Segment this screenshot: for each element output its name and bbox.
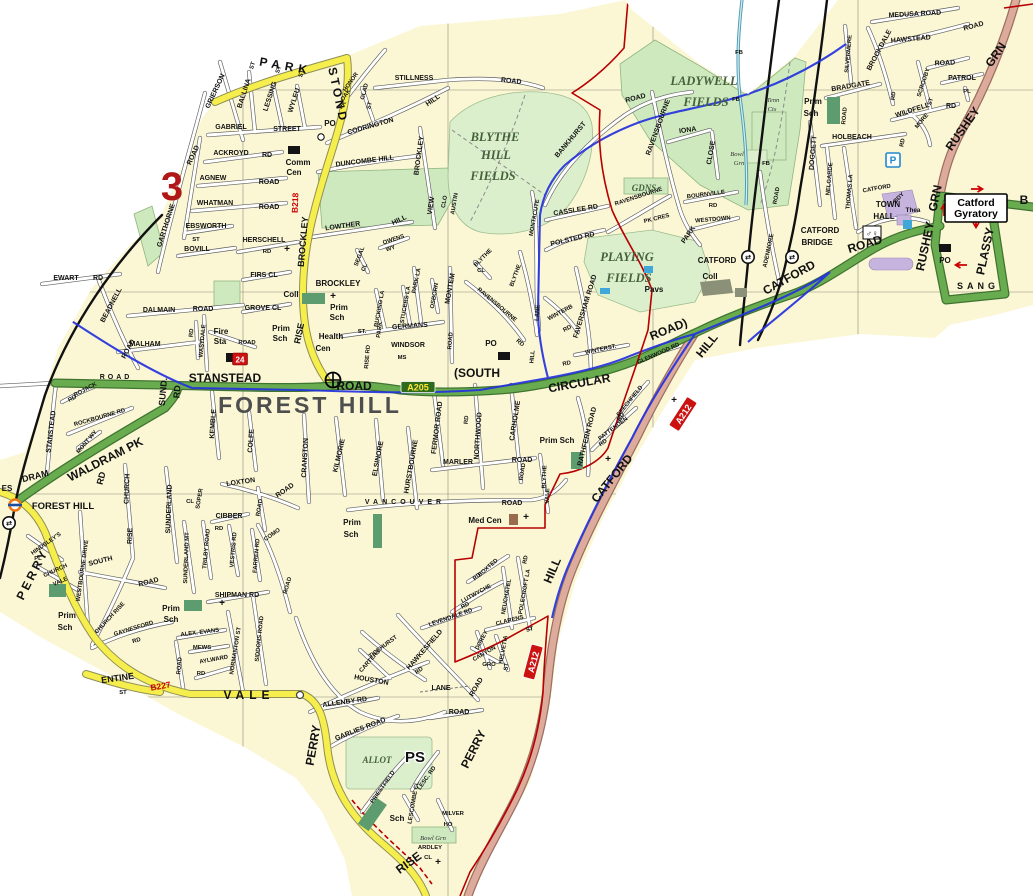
svg-text:Gyratory: Gyratory	[954, 208, 998, 220]
map-label: SHIPMAN RD	[215, 592, 259, 599]
map-label: MALHAM	[129, 341, 160, 348]
map-label: Health	[319, 332, 344, 341]
map-label: Comm	[286, 158, 311, 167]
map-label: RD	[171, 384, 182, 398]
map-label: Tenn	[767, 97, 780, 104]
map-label: BLYTHE	[470, 130, 520, 144]
map-label: ROAD	[512, 457, 533, 464]
medical-centre-building	[509, 514, 518, 525]
college-building	[700, 279, 733, 296]
road-badge-a205: A205	[401, 382, 435, 393]
svg-text:A205: A205	[407, 383, 429, 393]
map-label: Sch	[804, 109, 819, 118]
svg-text:⇄: ⇄	[789, 254, 795, 262]
map-label: ARDLEY	[418, 845, 442, 851]
map-label: ROAD	[238, 340, 255, 346]
svg-text:+: +	[330, 291, 336, 302]
fire-station-building	[226, 353, 233, 362]
svg-text:+: +	[605, 454, 611, 465]
map-label: Sch	[58, 623, 73, 632]
map-label: ST	[249, 61, 257, 70]
map-label: Sch	[164, 615, 179, 624]
map-label: LANE	[431, 685, 450, 692]
church-cross-icon: +	[284, 244, 290, 255]
map-label: ST	[119, 690, 127, 696]
college-building	[735, 288, 747, 297]
grove-close-green	[214, 281, 240, 306]
svg-text:A212: A212	[673, 403, 693, 426]
svg-text:+: +	[284, 244, 290, 255]
church-cross-icon: +	[671, 395, 677, 406]
church-cross-icon: +	[523, 512, 529, 523]
svg-text:+: +	[671, 395, 677, 406]
map-label: Sch	[344, 530, 359, 539]
map-label: SANG	[957, 281, 999, 291]
national-rail-icon: ⇄	[3, 517, 15, 529]
map-label: PO	[485, 339, 497, 348]
map-label: HILL	[529, 350, 536, 364]
svg-text:+: +	[219, 598, 225, 609]
svg-text:⇄: ⇄	[745, 254, 751, 262]
post-office-building	[498, 352, 510, 360]
map-label: PO	[324, 119, 336, 128]
svg-text:P: P	[890, 156, 897, 167]
svg-text:PS: PS	[405, 749, 425, 766]
map-label: MS	[398, 355, 407, 361]
road-badge-24: 24	[233, 353, 248, 365]
map-label: ST.	[358, 329, 367, 335]
map-label: BLYTHE	[542, 465, 549, 488]
map-label: Prim	[58, 611, 76, 620]
road-badge-catford-gyratory: CatfordGyratory	[945, 194, 1007, 222]
pond	[600, 288, 610, 294]
map-label: CL	[477, 268, 485, 274]
map-label: PO	[939, 256, 951, 265]
post-office-building	[939, 244, 951, 252]
school-building	[184, 600, 202, 611]
map-label: Prim	[162, 604, 180, 613]
street-map: +++++++♂♀PS PARKSTONDGRIERSONROADGABRIEL…	[0, 0, 1033, 896]
theatre-building	[903, 220, 912, 229]
school-building	[827, 97, 840, 124]
svg-text:+: +	[523, 512, 529, 523]
map-label: Prim	[272, 324, 290, 333]
map-label: ROAD	[502, 500, 523, 507]
map-label: RD	[946, 103, 956, 110]
map-label: Prim Sch	[540, 436, 575, 445]
map-label: Coll	[702, 272, 717, 281]
map-label: PLAYING	[600, 250, 653, 264]
national-rail-icon: ⇄	[786, 251, 798, 263]
map-label: RD	[891, 91, 898, 100]
map-label: GABRIEL	[215, 124, 247, 131]
map-label: Sch	[390, 814, 405, 823]
map-label: ACKROYD	[213, 150, 248, 157]
map-label: B218	[290, 192, 301, 213]
police-station-icon: PS	[405, 749, 425, 766]
map-label: RD	[215, 526, 224, 532]
school-building	[373, 514, 382, 548]
map-label: PL	[963, 89, 971, 95]
map-label: Bowl	[730, 151, 744, 158]
map-label: ES	[2, 484, 13, 493]
map-label: Coll	[283, 290, 298, 299]
map-label: GRO	[482, 662, 496, 668]
map-label: FB	[735, 50, 743, 56]
map-label: FB	[732, 97, 740, 103]
map-label: HILL	[480, 148, 511, 162]
map-label: PATROL	[948, 75, 976, 82]
map-label: CATFORD	[698, 256, 737, 265]
civic-building	[869, 258, 913, 270]
map-label: ROAD	[100, 374, 133, 381]
map-label: EWART	[53, 275, 79, 282]
map-label: RISE	[127, 527, 135, 544]
map-label: MARLER	[443, 459, 473, 466]
map-label: ROAD	[449, 709, 470, 716]
map-label: WINDSOR	[391, 342, 425, 349]
map-label: ROAD	[259, 204, 280, 211]
map-label: (SOUTH	[454, 366, 500, 380]
map-label: RD	[262, 152, 272, 159]
map-label: 3	[161, 165, 183, 209]
map-label: STILLNESS	[395, 75, 434, 82]
map-label: Cen	[315, 344, 330, 353]
school-building	[302, 293, 325, 304]
map-label: CATFORD	[801, 226, 840, 235]
parking-icon: P	[886, 153, 900, 167]
map-label: MILVER	[442, 811, 465, 817]
church-cross-icon: +	[435, 857, 441, 868]
map-label: ROAD	[259, 179, 280, 186]
map-label: RD	[709, 203, 718, 209]
map-label: FIELDS	[682, 95, 728, 109]
map-label: TOWN	[876, 200, 901, 209]
map-label: VALE	[545, 488, 552, 504]
map-label: RD	[93, 275, 103, 282]
map-label: MEWS	[193, 645, 211, 651]
map-label: Prim	[804, 97, 822, 106]
map-label: FIELDS	[469, 169, 515, 183]
map-label: Cen	[286, 168, 301, 177]
map-label: CHURCH	[123, 474, 131, 505]
map-label: ROAD	[934, 59, 955, 67]
map-label: ALLOT	[362, 755, 392, 765]
map-label: Cts	[768, 106, 777, 113]
map-label: ST	[192, 237, 200, 243]
map-label: FOREST HILL	[32, 501, 94, 512]
map-label: GROVE CL	[245, 305, 282, 312]
map-label: FIRS CL	[250, 272, 278, 279]
svg-text:+: +	[435, 857, 441, 868]
map-label: B	[1020, 193, 1029, 207]
map-label: EBSWORTH	[186, 223, 227, 230]
svg-text:24: 24	[236, 356, 245, 365]
map-label: FB	[762, 161, 770, 167]
map-root[interactable]: +++++++♂♀PS PARKSTONDGRIERSONROADGABRIEL…	[0, 0, 1033, 896]
map-label: FOREST HILL	[218, 392, 402, 418]
map-label: Thea	[906, 207, 921, 214]
map-label: WHATMAN	[197, 200, 233, 207]
map-label: PL	[34, 556, 42, 562]
map-label: Sta	[214, 337, 227, 346]
national-rail-icon: ⇄	[742, 251, 754, 263]
church-cross-icon: +	[219, 598, 225, 609]
map-label: HERSCHELL	[243, 237, 287, 244]
map-label: HOLBEACH	[832, 134, 872, 141]
map-label: RD	[189, 328, 196, 337]
community-centre-building	[288, 146, 300, 154]
map-label: DALMAIN	[143, 307, 175, 314]
map-label: RD	[197, 671, 206, 677]
map-label: Bowl Grn	[420, 835, 447, 842]
map-label: HO	[444, 822, 453, 828]
map-label: BRIDGE	[801, 238, 833, 247]
map-label: Sch	[330, 313, 345, 322]
map-label: VANCOUVER	[365, 499, 445, 506]
svg-text:⇄: ⇄	[6, 520, 12, 528]
map-label: AGNEW	[200, 175, 227, 182]
church-cross-icon: +	[330, 291, 336, 302]
map-label: BROCKLEY	[316, 279, 362, 288]
map-label: Prim	[330, 303, 348, 312]
map-label: VALE	[223, 688, 274, 702]
map-label: CIBBER	[216, 513, 243, 520]
map-label: Pavs	[645, 285, 664, 294]
map-label: LADYWELL	[669, 74, 738, 88]
map-label: Sch	[273, 334, 288, 343]
map-label: CL	[186, 499, 194, 505]
map-label: CL	[424, 855, 432, 861]
map-label: ROAD	[336, 379, 372, 393]
map-label: Grn	[734, 160, 745, 167]
map-label: BOVILL	[184, 246, 210, 253]
map-label: GDNS	[632, 183, 657, 193]
church-cross-icon: +	[605, 454, 611, 465]
map-label: RD	[263, 249, 272, 255]
map-label: Med Cen	[468, 516, 501, 525]
map-label: FIELDS	[605, 271, 651, 285]
map-label: STANSTEAD	[189, 371, 262, 385]
mini-roundabout-icon	[297, 692, 304, 699]
map-label: STREET	[273, 126, 301, 133]
post-office-ring-icon	[318, 134, 324, 140]
map-label: ROAD	[193, 306, 214, 313]
map-label: Prim	[343, 518, 361, 527]
map-label: RD	[464, 415, 471, 424]
map-label: Fire	[214, 327, 229, 336]
map-label: HALL	[873, 212, 894, 221]
overground-roundel-icon	[8, 500, 22, 511]
